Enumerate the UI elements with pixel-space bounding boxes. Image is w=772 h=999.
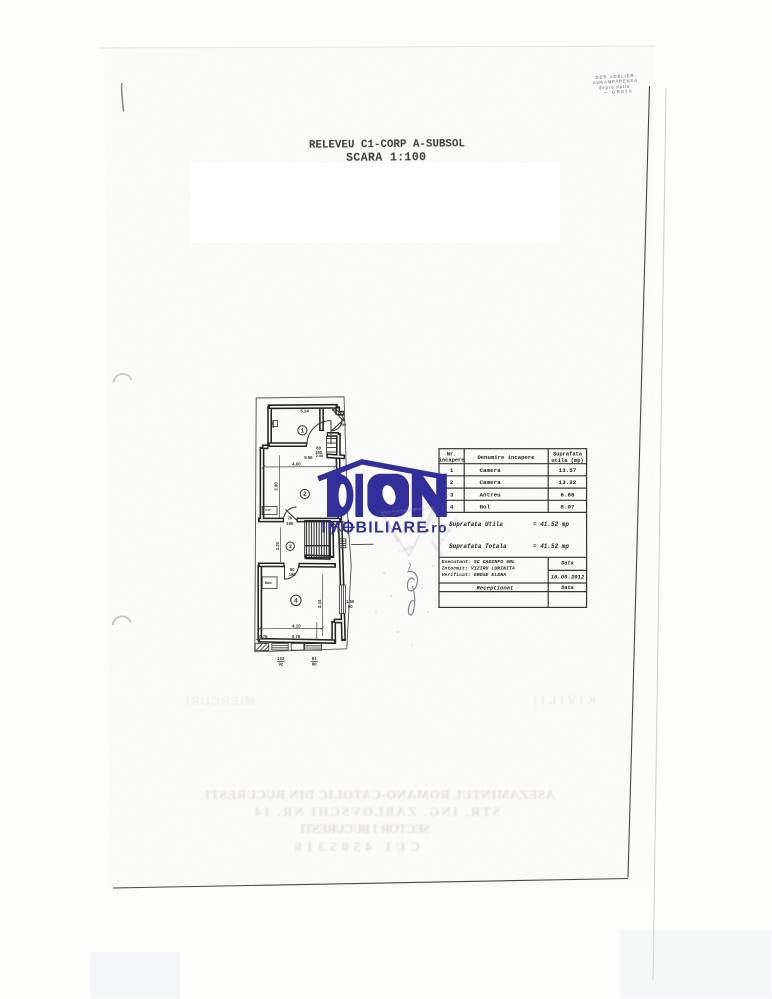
svg-text:190: 190	[289, 572, 297, 577]
svg-text:RELEVEU C1-CORP A-SUBSOL: RELEVEU C1-CORP A-SUBSOL	[309, 138, 465, 151]
svg-text:8.07: 8.07	[560, 504, 575, 511]
svg-text:1: 1	[450, 467, 454, 474]
svg-text:190: 190	[286, 521, 294, 526]
svg-text:4.00: 4.00	[292, 461, 301, 466]
svg-text:2.50: 2.50	[270, 420, 275, 429]
svg-text:Intocmit: VIZIRU LUMINITA: Intocmit: VIZIRU LUMINITA	[442, 565, 515, 571]
svg-text:Suprafata Totala: Suprafata Totala	[449, 543, 507, 550]
svg-text:13.57: 13.57	[559, 467, 577, 474]
svg-text:ASEZAMINTUL ROMANO-CATOLIC DIN: ASEZAMINTUL ROMANO-CATOLIC DIN BUCURESTI	[205, 787, 555, 802]
svg-text:5.24: 5.24	[300, 409, 309, 414]
svg-text:0.76: 0.76	[259, 634, 268, 639]
svg-text:80: 80	[312, 661, 317, 666]
svg-text:2.38: 2.38	[316, 454, 323, 458]
svg-text:5.56: 5.56	[304, 455, 313, 460]
svg-text:3.44: 3.44	[317, 599, 322, 608]
svg-text:13.22: 13.22	[559, 479, 577, 486]
svg-text:STR. ING. ZABLOVSCHI NR. 14: STR. ING. ZABLOVSCHI NR. 14	[255, 804, 501, 819]
svg-text:3.90: 3.90	[274, 482, 279, 491]
svg-text:= 41.52 mp: = 41.52 mp	[533, 543, 569, 550]
svg-text:IMOBILIARE: IMOBILIARE	[322, 520, 428, 537]
svg-text:Hol: Hol	[480, 504, 491, 511]
svg-text:81: 81	[312, 656, 317, 661]
svg-text:Receptionat: Receptionat	[477, 584, 514, 591]
svg-text:6.66: 6.66	[560, 491, 575, 498]
svg-text:2.20: 2.20	[275, 541, 280, 550]
svg-text:Executant: SC CADINFO SRL: Executant: SC CADINFO SRL	[442, 559, 515, 565]
svg-text:3: 3	[450, 491, 454, 498]
svg-text:190: 190	[340, 422, 347, 427]
svg-text:Data: Data	[561, 585, 573, 591]
svg-text:102: 102	[277, 656, 285, 661]
svg-text:1: 1	[301, 428, 305, 435]
svg-text:Antreu: Antreu	[480, 491, 502, 498]
svg-text:Data: Data	[561, 560, 573, 566]
svg-text:0.15: 0.15	[265, 508, 271, 512]
svg-text:SECTOR 1 BUCURESTI: SECTOR 1 BUCURESTI	[300, 821, 430, 836]
svg-text:Nr.: Nr.	[447, 451, 457, 457]
svg-text:incapere: incapere	[439, 458, 465, 464]
svg-text:Camera: Camera	[480, 467, 502, 474]
svg-text:92: 92	[278, 661, 283, 666]
svg-text:0.76: 0.76	[292, 634, 301, 639]
svg-text:= 41.52 mp: = 41.52 mp	[533, 521, 569, 528]
svg-text:16.05.2012: 16.05.2012	[551, 573, 585, 580]
svg-text:Verificat: GROSE ELENA: Verificat: GROSE ELENA	[442, 572, 507, 578]
svg-text:2: 2	[303, 491, 307, 498]
svg-text:Suprafata: Suprafata	[553, 451, 583, 457]
svg-text:4.10: 4.10	[292, 623, 301, 628]
svg-text:SCARA 1:100: SCARA 1:100	[346, 151, 426, 165]
svg-text:utila (mp): utila (mp)	[551, 458, 583, 464]
svg-text:2: 2	[450, 479, 454, 486]
svg-text:Denumire incapere: Denumire incapere	[477, 454, 535, 461]
svg-text:4: 4	[294, 598, 298, 605]
svg-text:Baie: Baie	[265, 581, 272, 585]
svg-text:4: 4	[450, 504, 454, 511]
svg-text:Camera: Camera	[480, 479, 502, 486]
svg-text:CUI 4505316: CUI 4505316	[295, 839, 421, 854]
svg-text:90: 90	[348, 604, 353, 609]
